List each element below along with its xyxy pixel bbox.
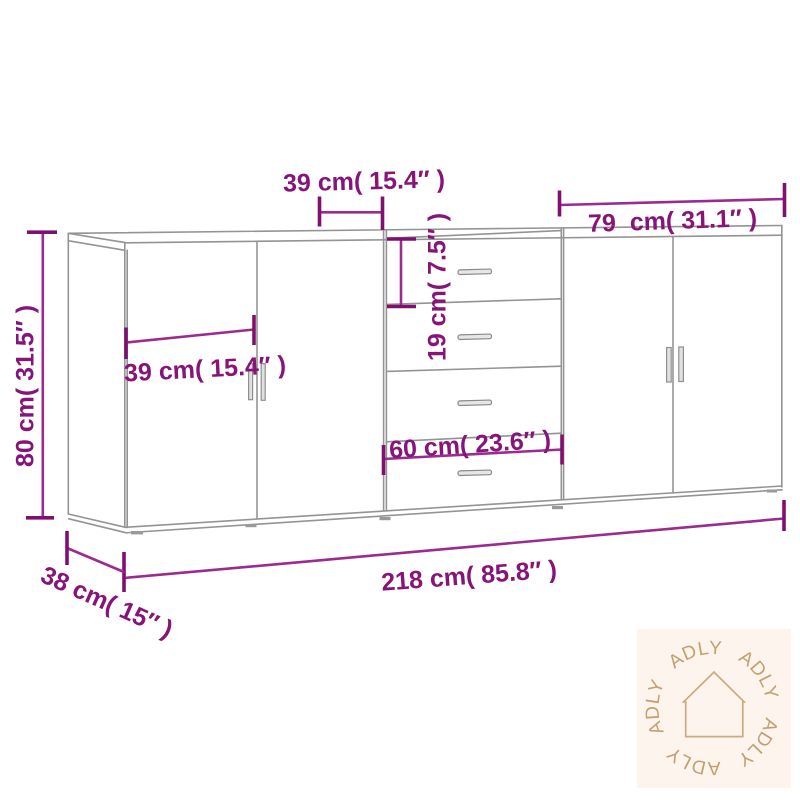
svg-text:19 cm( 7.5″ ): 19 cm( 7.5″ ) (424, 213, 452, 361)
svg-text:80 cm( 31.5″ ): 80 cm( 31.5″ ) (12, 305, 40, 467)
svg-text:39 cm( 15.4″ ): 39 cm( 15.4″ ) (283, 165, 446, 197)
svg-text:79 cm( 31.1″ ): 79 cm( 31.1″ ) (588, 204, 758, 238)
